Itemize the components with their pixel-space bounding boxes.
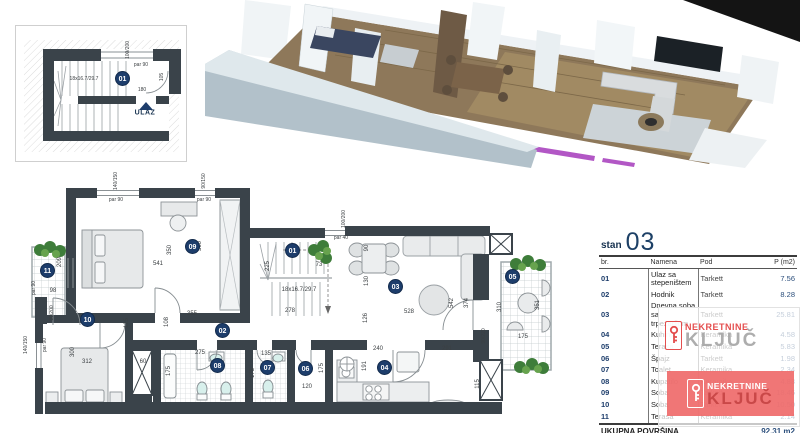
dim-label: par 90: [31, 281, 37, 295]
dim-label: 120: [302, 384, 312, 390]
dim-label: 135: [261, 351, 271, 357]
dim-label: 90/150: [201, 173, 207, 188]
dim-label: 100/200: [341, 210, 347, 228]
dim-label: ULAZ: [135, 110, 156, 117]
key-icon: [687, 379, 704, 408]
dim-label: 126: [363, 313, 369, 323]
key-icon: [665, 321, 682, 350]
dim-label: 291: [442, 346, 452, 352]
sofa: [403, 236, 485, 256]
dim-label: 351: [535, 300, 541, 310]
stair-detail-box: [15, 25, 187, 162]
dim-label: 175: [518, 334, 528, 340]
dim-label: 73: [316, 262, 323, 268]
room-marker-03: 03: [388, 279, 403, 294]
dim-label: 98: [50, 288, 57, 294]
stair-detail-drawing: [16, 26, 186, 161]
agency-logo: NEKRETNINE KLJUČ: [665, 321, 758, 350]
room-marker-01: 01: [285, 243, 300, 258]
dim-label: 310: [497, 302, 503, 312]
dim-label: 105: [159, 73, 165, 81]
dim-label: 175: [166, 366, 172, 376]
dim-label: par 90: [134, 62, 148, 68]
dim-label: 108: [164, 317, 170, 327]
apartment-number: 03: [626, 230, 656, 254]
coffee-table: [419, 285, 449, 315]
dim-label: 140/150: [113, 172, 119, 190]
dim-label: 312: [82, 359, 92, 365]
screenshot-stage: stan 03 br. Namena Pod P (m2) 01Ulaz sa …: [0, 0, 800, 433]
dim-label: 90/220: [481, 328, 487, 343]
dim-label: 528: [404, 309, 414, 315]
dim-label: 18x16.7/29.7: [70, 76, 99, 82]
render-roof-edge: [683, 0, 800, 42]
dim-label: 355: [187, 311, 197, 317]
dim-label: 191: [362, 361, 368, 371]
dim-label: 90: [364, 245, 370, 252]
dim-label: 175: [250, 368, 256, 378]
table-row: 01Ulaz sa stepeništemTarkett7.56: [599, 269, 797, 290]
agency-name-line2: KLJUČ: [685, 332, 758, 350]
table-row: 02HodnikTarkett8.28: [599, 289, 797, 301]
room-marker-09: 09: [185, 239, 200, 254]
room-marker-06: 06: [298, 361, 313, 376]
col-header-pod: Pod: [698, 257, 748, 269]
dim-label: 80/200: [49, 305, 55, 320]
dim-label: 60: [140, 359, 147, 365]
room-marker-07: 07: [260, 360, 275, 375]
room-marker-04: 04: [377, 360, 392, 375]
dim-label: 100/200: [125, 41, 131, 59]
fridge: [397, 352, 419, 372]
dim-label: 275: [195, 350, 205, 356]
dim-label: 130: [364, 276, 370, 286]
apartment-title: stan 03: [599, 230, 797, 257]
col-header-br: br.: [599, 257, 649, 269]
dim-label: 180: [138, 87, 146, 93]
dim-label: 300: [70, 347, 76, 357]
total-area-label: UKUPNA POVRŠINA: [601, 427, 679, 433]
desk-09: [161, 202, 197, 216]
dim-label: 140/150: [23, 336, 29, 354]
dim-label: 18x16.7/29.7: [282, 287, 317, 293]
dim-label: 541: [153, 261, 163, 267]
room-marker-05: 05: [505, 269, 520, 284]
apartment-title-prefix: stan: [601, 240, 622, 254]
floor-plan: [20, 168, 600, 433]
dim-label: 125: [124, 318, 130, 328]
dim-label: 225: [265, 261, 271, 271]
agency-name-line2: KLJUČ: [707, 391, 774, 407]
agency-logo-red: NEKRETNINE KLJUČ: [667, 371, 794, 416]
dim-label: par 90: [42, 338, 48, 352]
dim-label: 278: [285, 308, 295, 314]
room-marker-01: 01: [115, 71, 130, 86]
dim-label: 175: [319, 363, 325, 373]
room-marker-08: 08: [210, 358, 225, 373]
dim-label: 115: [475, 379, 481, 389]
dim-label: par 90: [197, 197, 211, 203]
dim-label: 374: [464, 298, 470, 308]
render-3d-view: [205, 0, 800, 168]
room-marker-11: 11: [40, 263, 55, 278]
dim-label: par 90: [109, 197, 123, 203]
dim-label: 542: [449, 298, 455, 308]
dim-label: par 40: [334, 235, 348, 241]
col-header-namena: Namena: [649, 257, 699, 269]
room-marker-02: 02: [215, 323, 230, 338]
dim-label: 240: [373, 346, 383, 352]
room-marker-10: 10: [80, 312, 95, 327]
dim-label: 350: [167, 245, 173, 255]
dim-label: 209: [57, 257, 63, 267]
col-header-area: P (m2): [748, 257, 798, 269]
total-area-value: 92.31 m2: [761, 427, 795, 433]
